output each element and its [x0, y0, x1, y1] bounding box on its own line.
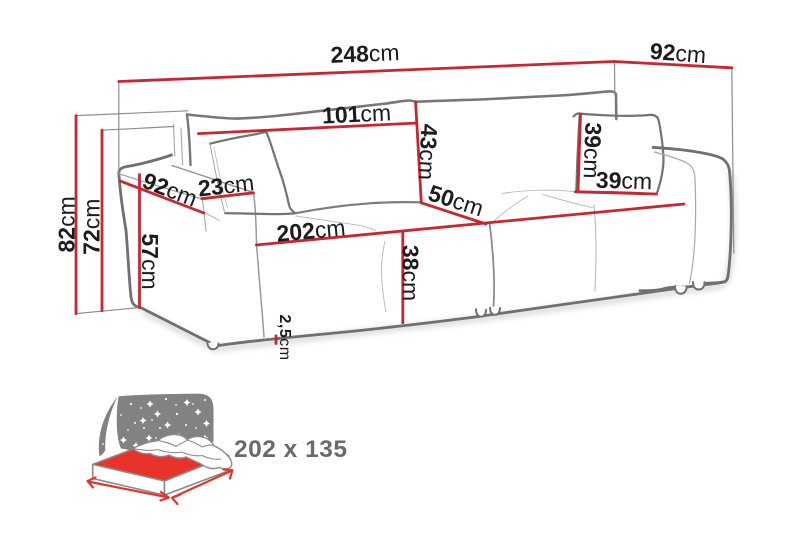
svg-text:39cm: 39cm	[596, 167, 653, 194]
svg-text:101cm: 101cm	[321, 99, 391, 128]
svg-text:82cm: 82cm	[53, 196, 79, 252]
svg-text:43cm: 43cm	[414, 123, 443, 181]
svg-text:38cm: 38cm	[398, 245, 424, 301]
svg-text:2,5cm: 2,5cm	[276, 314, 293, 360]
svg-text:57cm: 57cm	[137, 233, 163, 289]
svg-text:202 x 135: 202 x 135	[234, 436, 348, 463]
svg-text:248cm: 248cm	[330, 39, 400, 68]
svg-text:92cm: 92cm	[649, 38, 707, 68]
svg-text:72cm: 72cm	[79, 199, 105, 255]
